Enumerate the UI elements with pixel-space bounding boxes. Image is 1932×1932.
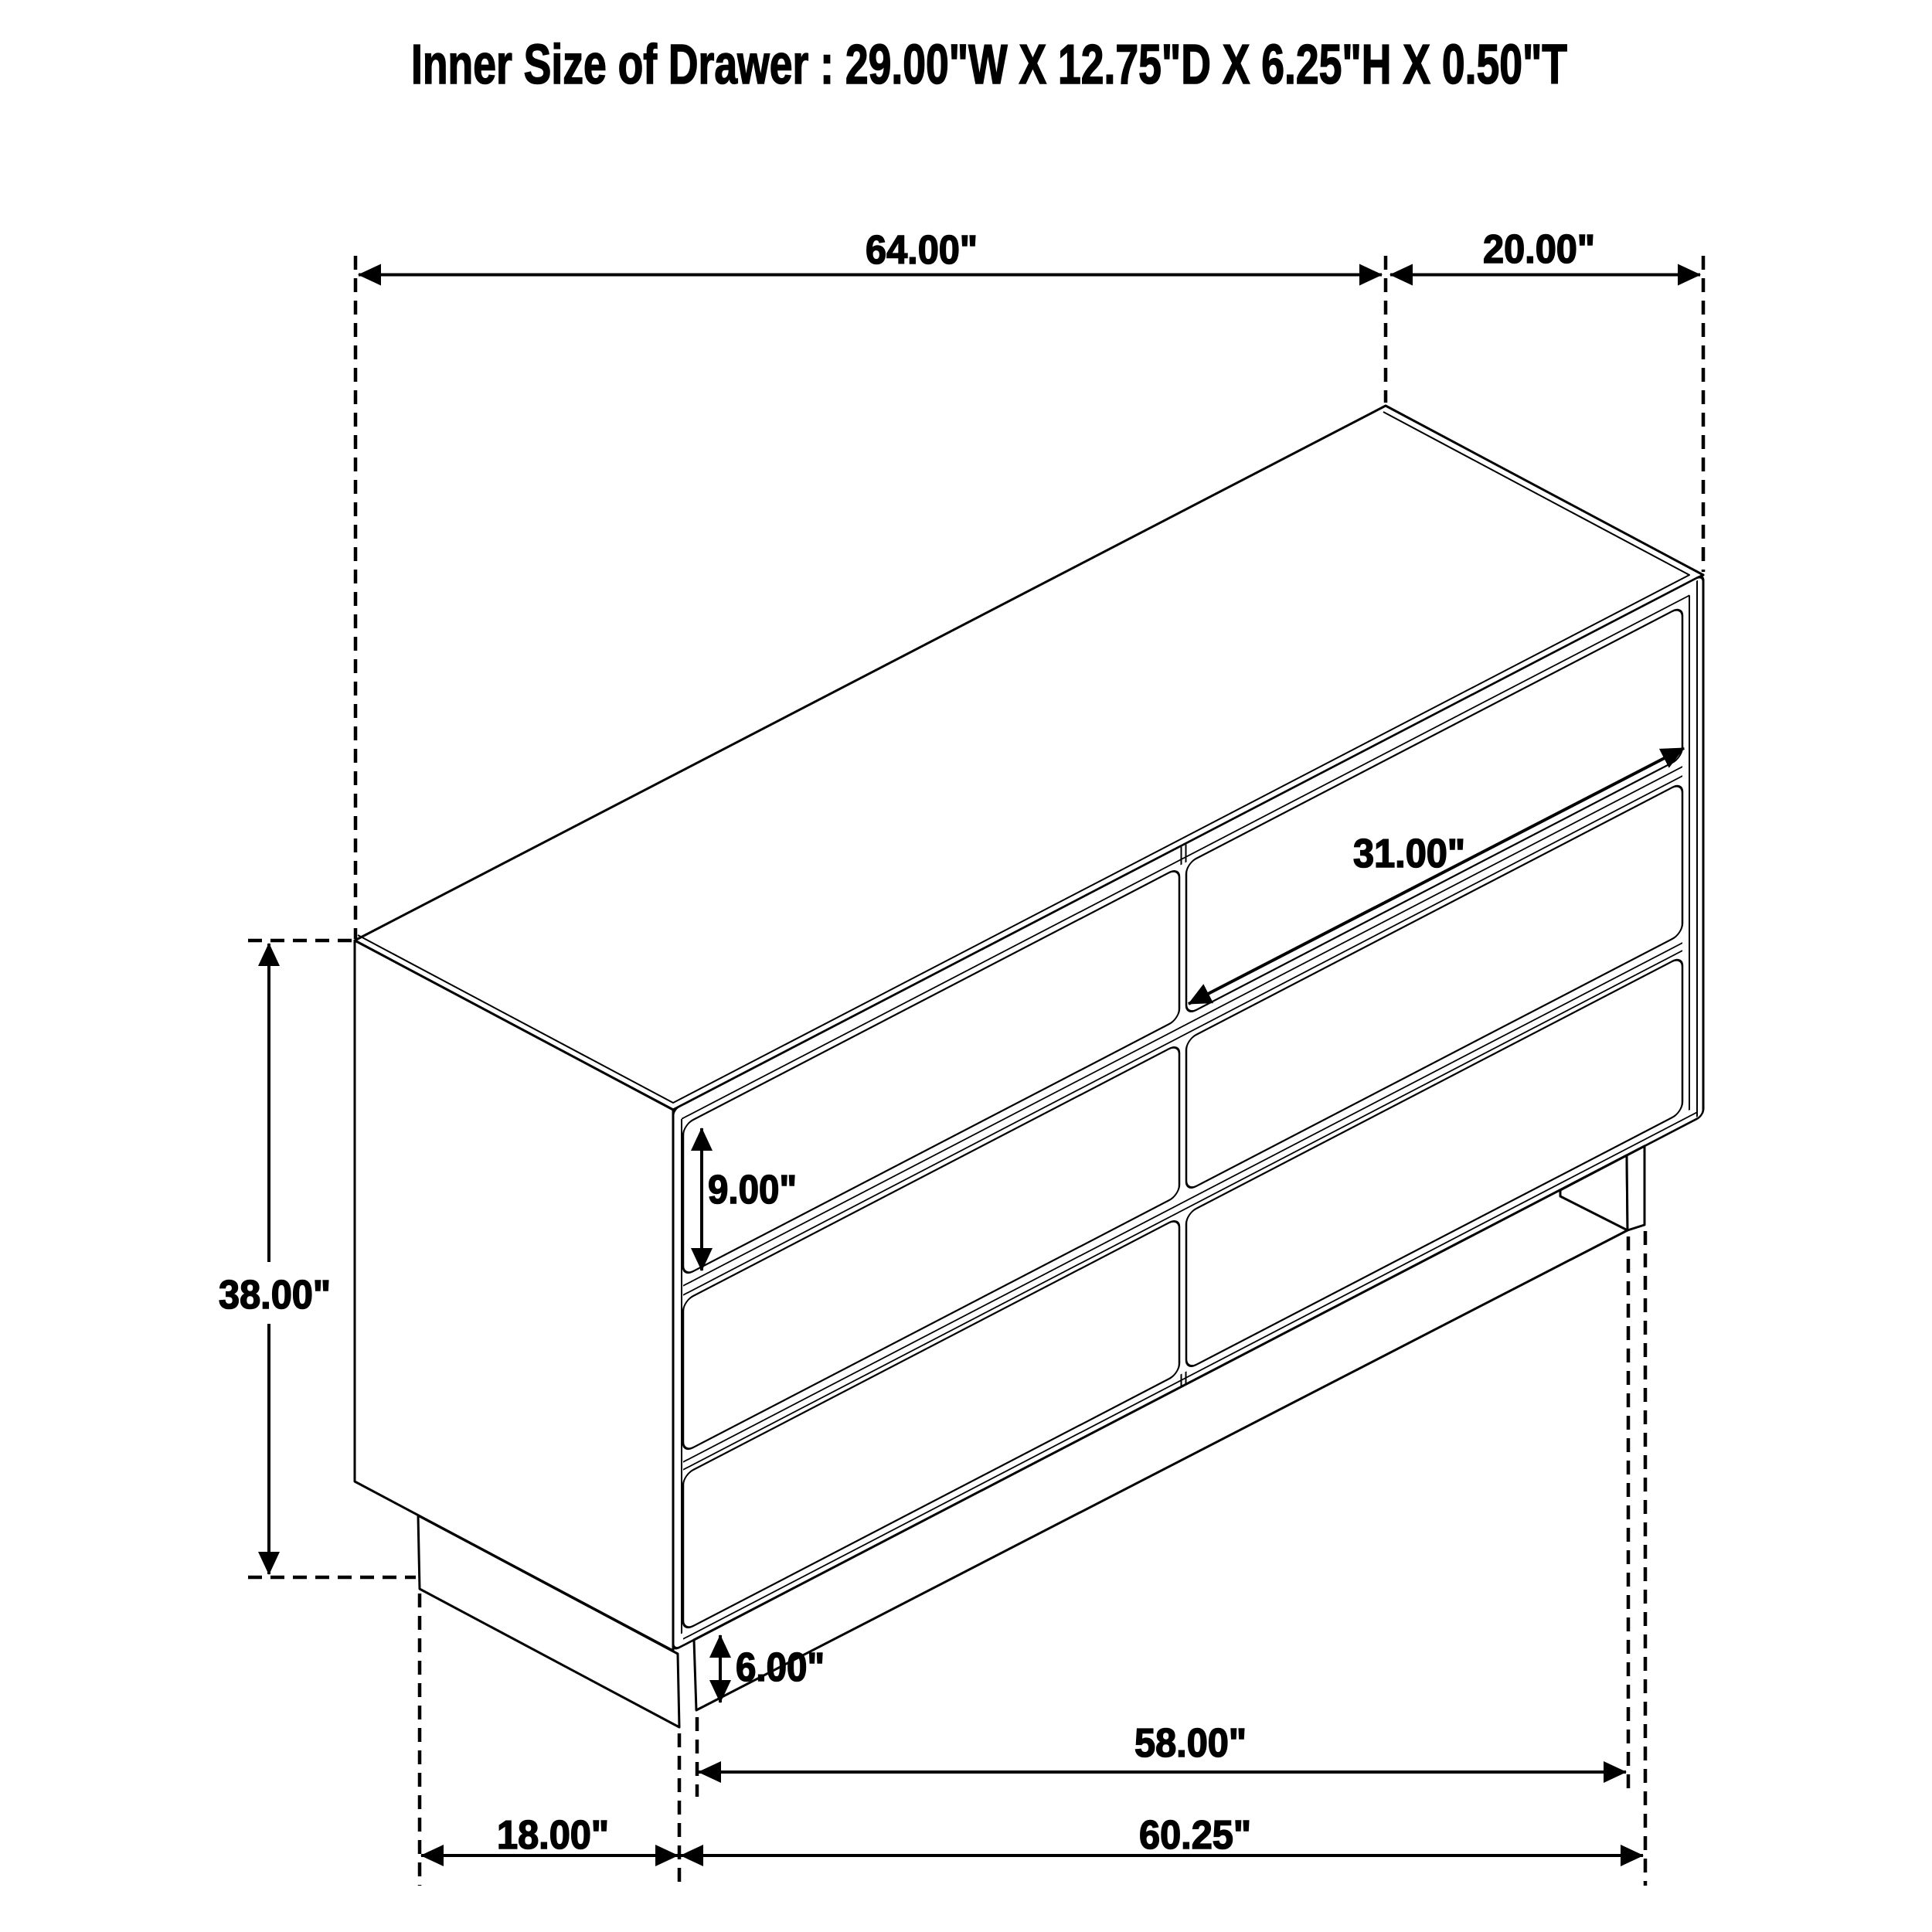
svg-text:60.25": 60.25" [1139,1813,1251,1858]
svg-text:18.00": 18.00" [497,1813,609,1858]
svg-text:9.00": 9.00" [708,1168,797,1213]
svg-text:20.00": 20.00" [1483,227,1595,272]
svg-text:64.00": 64.00" [866,228,978,273]
svg-text:Inner Size of Drawer : 29.00"W: Inner Size of Drawer : 29.00"W X 12.75"D… [411,34,1567,96]
svg-text:58.00": 58.00" [1134,1721,1247,1766]
svg-text:38.00": 38.00" [219,1273,331,1318]
svg-text:6.00": 6.00" [736,1645,825,1690]
